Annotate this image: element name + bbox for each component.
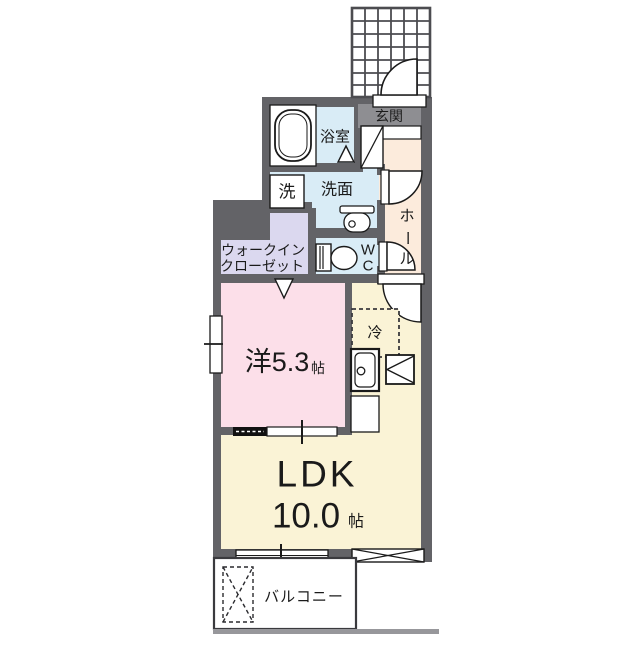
hall-char-2: ー — [399, 230, 416, 245]
washbasin-top — [340, 206, 374, 213]
toilet-char-c: C — [363, 258, 374, 275]
kitchen-sink-icon — [351, 349, 379, 391]
hall-char-3: ル — [399, 251, 414, 268]
washbasin-drain — [349, 221, 355, 227]
wall-right — [421, 97, 432, 562]
ldk-name: LDK — [277, 454, 358, 495]
ldk-size: 10.0 — [272, 497, 340, 536]
ldk-size-unit: 帖 — [348, 513, 364, 531]
washbasin-bowl — [344, 213, 370, 232]
hall-char-1: ホ — [399, 208, 414, 225]
hall-label: ホ ー ル — [399, 208, 416, 268]
toilet-door-leaf — [379, 242, 387, 271]
hall-ldk-door-leaf — [378, 274, 424, 284]
western-room-size: 洋5.3 — [245, 347, 310, 377]
entrance-step-outside — [373, 95, 426, 107]
toilet-bowl — [331, 247, 357, 270]
closet-label: ウォークイン クローゼット — [220, 242, 305, 274]
closet-label-line1: ウォークイン — [221, 242, 305, 258]
ground-line — [213, 629, 439, 634]
wall-left-upper — [262, 97, 270, 207]
floorplan-svg: 冷 バルコニー 玄関 浴室 洗 洗面 ホ ー ル — [0, 0, 640, 640]
wall-closet-right — [308, 208, 316, 280]
wall-left-lower — [213, 238, 221, 556]
western-room-unit: 帖 — [311, 360, 325, 376]
water-heater-icon — [386, 355, 414, 384]
bathroom-label: 浴室 — [320, 129, 350, 146]
floorplan-image: 冷 バルコニー 玄関 浴室 洗 洗面 ホ ー ル — [0, 0, 640, 640]
water-heater-box — [386, 355, 414, 384]
wall-hall-b — [377, 200, 385, 245]
wall-step-corner — [213, 200, 270, 240]
washroom-label: 洗面 — [321, 181, 353, 199]
lattice-window-icon — [352, 549, 424, 562]
laundry-label: 洗 — [279, 183, 296, 202]
wall-closet-bottom — [213, 274, 383, 283]
balcony-label: バルコニー — [264, 589, 344, 606]
refrigerator-label: 冷 — [367, 325, 382, 342]
washbasin-icon — [340, 206, 374, 232]
balcony: バルコニー — [214, 558, 356, 629]
washroom-door-leaf — [381, 170, 389, 204]
bathtub-outer — [275, 110, 311, 161]
closet-label-line2: クローゼット — [220, 258, 304, 274]
toilet-icon — [316, 244, 357, 271]
entrance-label: 玄関 — [375, 108, 403, 124]
toilet-char-w: W — [361, 242, 376, 259]
shoe-cabinet-icon — [361, 126, 383, 168]
bathtub-icon — [270, 105, 316, 166]
kitchen-faucet — [357, 367, 365, 375]
kitchen-counter — [351, 396, 379, 432]
